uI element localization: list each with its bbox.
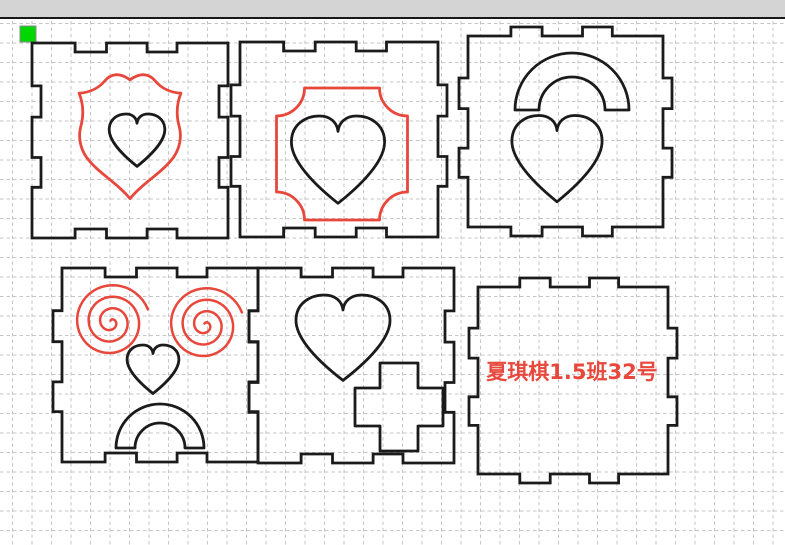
engraving-text[interactable]: 夏琪棋1.5班32号 xyxy=(486,360,657,384)
design-canvas[interactable]: 夏琪棋1.5班32号 xyxy=(0,0,785,545)
app-window: 夏琪棋1.5班32号 xyxy=(0,0,785,545)
canvas-area: 夏琪棋1.5班32号 xyxy=(0,0,785,545)
toolbar xyxy=(0,0,785,19)
selection-handle[interactable] xyxy=(20,26,36,42)
